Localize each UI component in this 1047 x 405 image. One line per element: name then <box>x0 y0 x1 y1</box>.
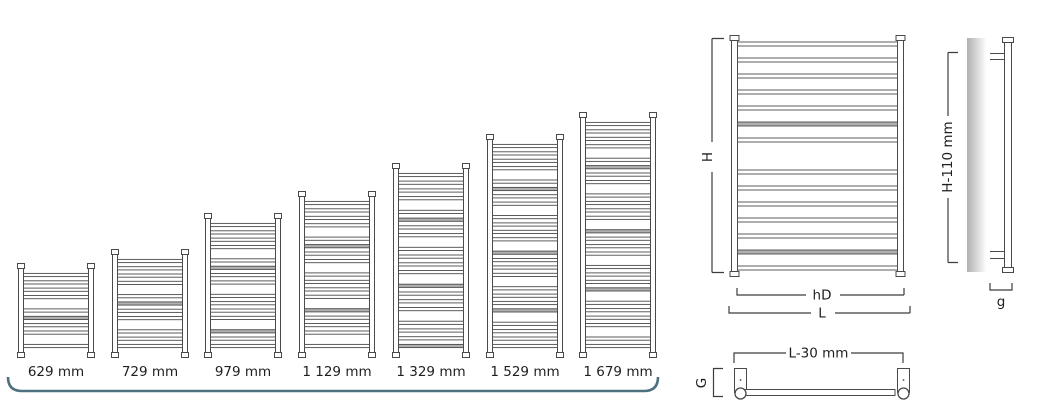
l30-dimension-label: L-30 mm <box>789 346 849 362</box>
g-dimension-line <box>990 283 1012 290</box>
radiator-figure <box>298 191 376 362</box>
l-dimension-label: L <box>818 306 826 322</box>
side-view-diagram: H-110 mm g <box>930 20 1047 320</box>
wall-shape <box>967 38 990 272</box>
g-depth-dimension-label: G <box>694 378 710 388</box>
g-depth-dimension-line <box>714 369 724 397</box>
h110-dimension-label: H-110 mm <box>940 121 956 192</box>
h-dimension-label: H <box>700 152 716 162</box>
wall-bracket-lines <box>990 54 1004 259</box>
radiator-figure <box>17 263 95 362</box>
radiator-figure <box>392 163 470 362</box>
front-view-diagram: H hD L <box>690 20 920 330</box>
radiator-figure <box>204 213 282 362</box>
radiator-figure <box>111 249 189 362</box>
radiator-figure <box>486 134 564 362</box>
g-dimension-label: g <box>997 294 1006 310</box>
bottom-view-diagram: L-30 mm G <box>690 335 940 405</box>
radiator-figure <box>579 112 657 362</box>
hd-dimension-label: hD <box>813 288 832 304</box>
size-range-bracket <box>0 368 680 402</box>
radiator-dimension-diagram: 629 mm 729 mm 979 mm 1 129 mm 1 329 mm 1… <box>0 0 1047 405</box>
